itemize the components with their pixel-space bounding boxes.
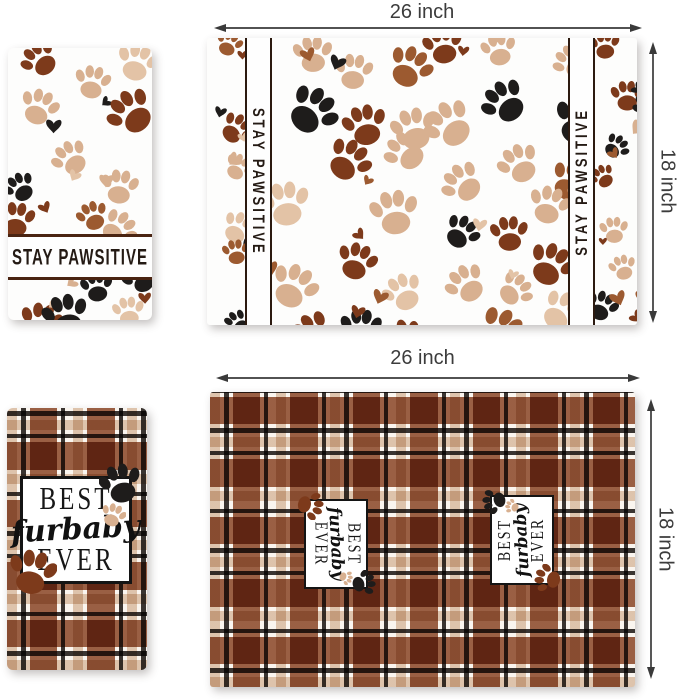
brown-paw-icon <box>295 491 324 520</box>
top-width-arrow <box>214 21 642 35</box>
slogan-text: STAY PAWSITIVE <box>12 244 148 270</box>
best-furbaby-ever-label: BEST furbaby EVER <box>20 476 132 584</box>
slogan-band-left: STAY PAWSITIVE <box>245 38 272 325</box>
placemat-best-furbaby-ever: BEST furbaby EVER BEST furbaby EVER <box>210 392 635 687</box>
placemat-stay-pawsitive: STAY PAWSITIVE STAY PAWSITIVE <box>207 38 637 325</box>
brown-paw-icon <box>534 564 563 593</box>
slogan-band-right: STAY PAWSITIVE <box>568 38 595 325</box>
double-arrow-horizontal-icon <box>214 21 642 35</box>
best-furbaby-ever-label-left: BEST furbaby EVER <box>304 499 368 589</box>
bottom-width-dimension-label: 26 inch <box>210 347 635 370</box>
double-arrow-horizontal-icon <box>216 371 640 385</box>
label-word-ever: EVER <box>530 518 548 563</box>
paw-pattern-edge-right <box>595 38 637 325</box>
best-furbaby-ever-label-right: BEST furbaby EVER <box>490 495 554 585</box>
bottom-height-dimension-label: 18 inch <box>654 392 676 687</box>
tan-paw-icon <box>338 570 353 585</box>
black-paw-icon <box>350 570 376 596</box>
tan-paw-icon <box>100 503 126 529</box>
label-word-ever: EVER <box>311 522 329 567</box>
black-paw-icon <box>99 463 143 507</box>
paw-pattern-field <box>272 38 568 325</box>
bottom-width-arrow <box>216 371 640 385</box>
dimension-text: 18 inch <box>654 507 677 572</box>
tan-paw-icon <box>505 499 520 514</box>
paw-pattern-edge-left <box>207 38 245 325</box>
slogan-text-left: STAY PAWSITIVE <box>249 108 268 256</box>
dimension-text: 18 inch <box>656 149 679 214</box>
top-height-dimension-label: 18 inch <box>656 38 678 325</box>
brown-paw-icon <box>7 549 57 599</box>
towel-best-furbaby-ever: BEST furbaby EVER <box>7 408 147 670</box>
slogan-text-right: STAY PAWSITIVE <box>572 108 591 256</box>
slogan-band: STAY PAWSITIVE <box>8 234 152 280</box>
product-collage: 26 inch STAY PAWSITIVE STAY PAWSITIVE ST… <box>0 0 679 700</box>
towel-stay-pawsitive: STAY PAWSITIVE <box>8 48 152 320</box>
